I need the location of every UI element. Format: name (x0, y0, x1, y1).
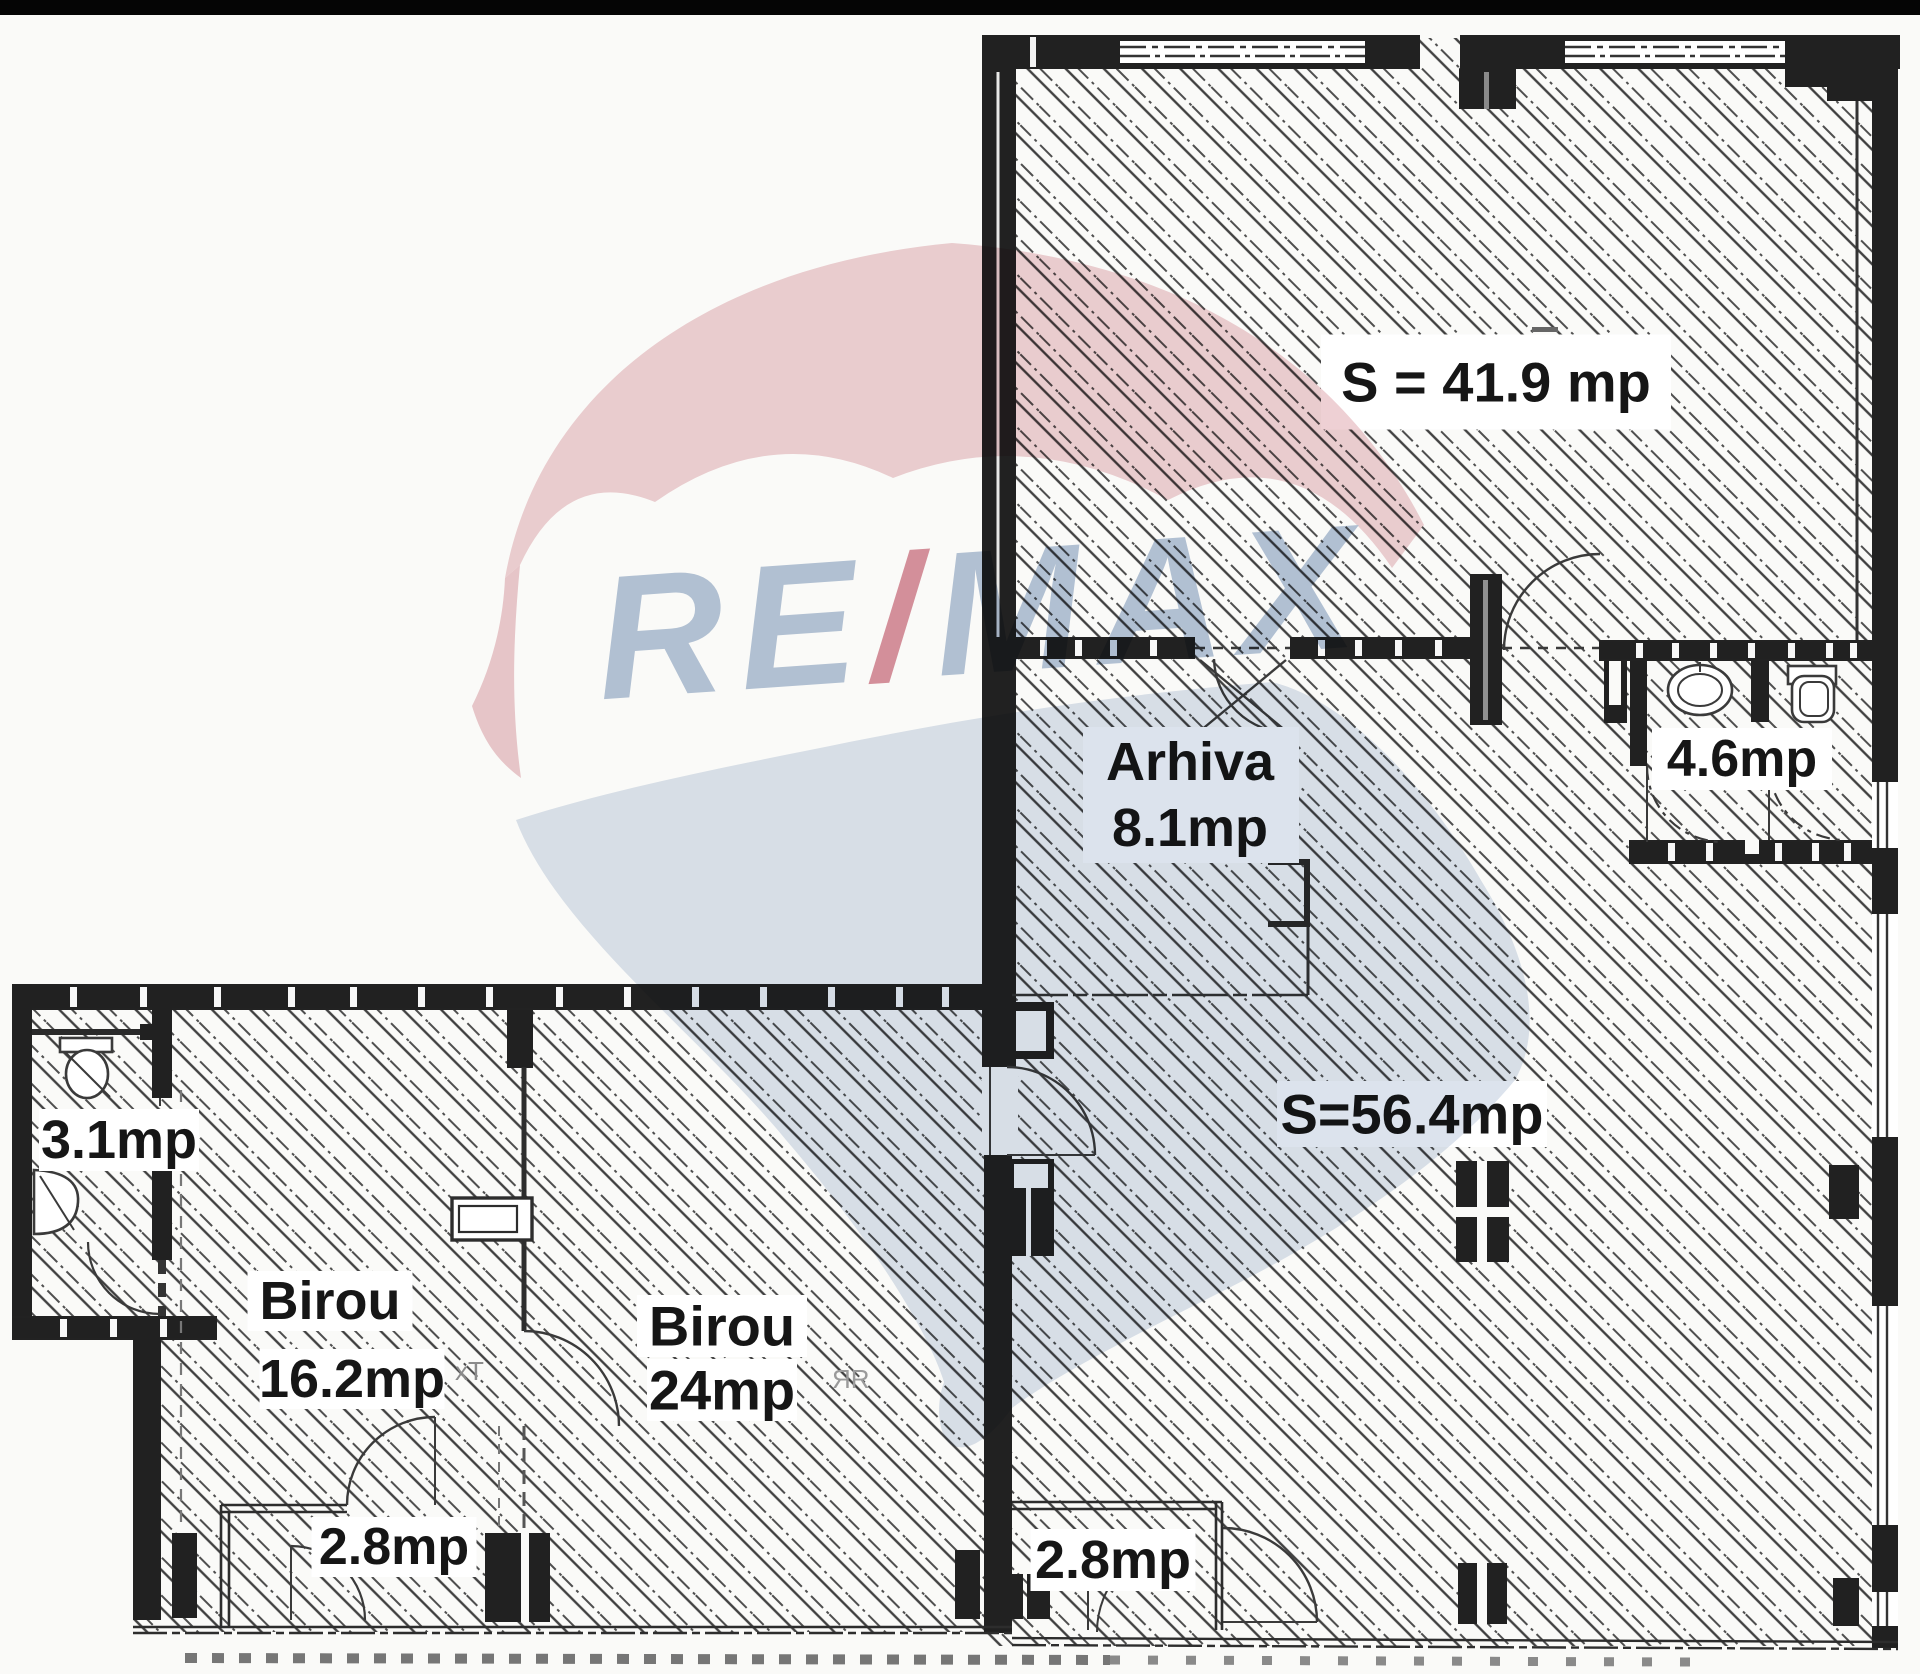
svg-text:2.8mp: 2.8mp (319, 1518, 469, 1576)
svg-text:Birou: Birou (649, 1295, 795, 1358)
svg-text:S = 41.9 mp: S = 41.9 mp (1341, 351, 1651, 414)
svg-text:4.6mp: 4.6mp (1667, 730, 1817, 788)
svg-text:ЯR: ЯR (832, 1364, 870, 1394)
svg-text:24mp: 24mp (649, 1359, 795, 1422)
svg-text:3.1mp: 3.1mp (41, 1110, 197, 1170)
svg-text:Birou: Birou (260, 1271, 401, 1331)
svg-text:xT: xT (455, 1356, 484, 1386)
svg-text:16.2mp: 16.2mp (259, 1349, 445, 1409)
svg-text:2.8mp: 2.8mp (1035, 1530, 1191, 1590)
